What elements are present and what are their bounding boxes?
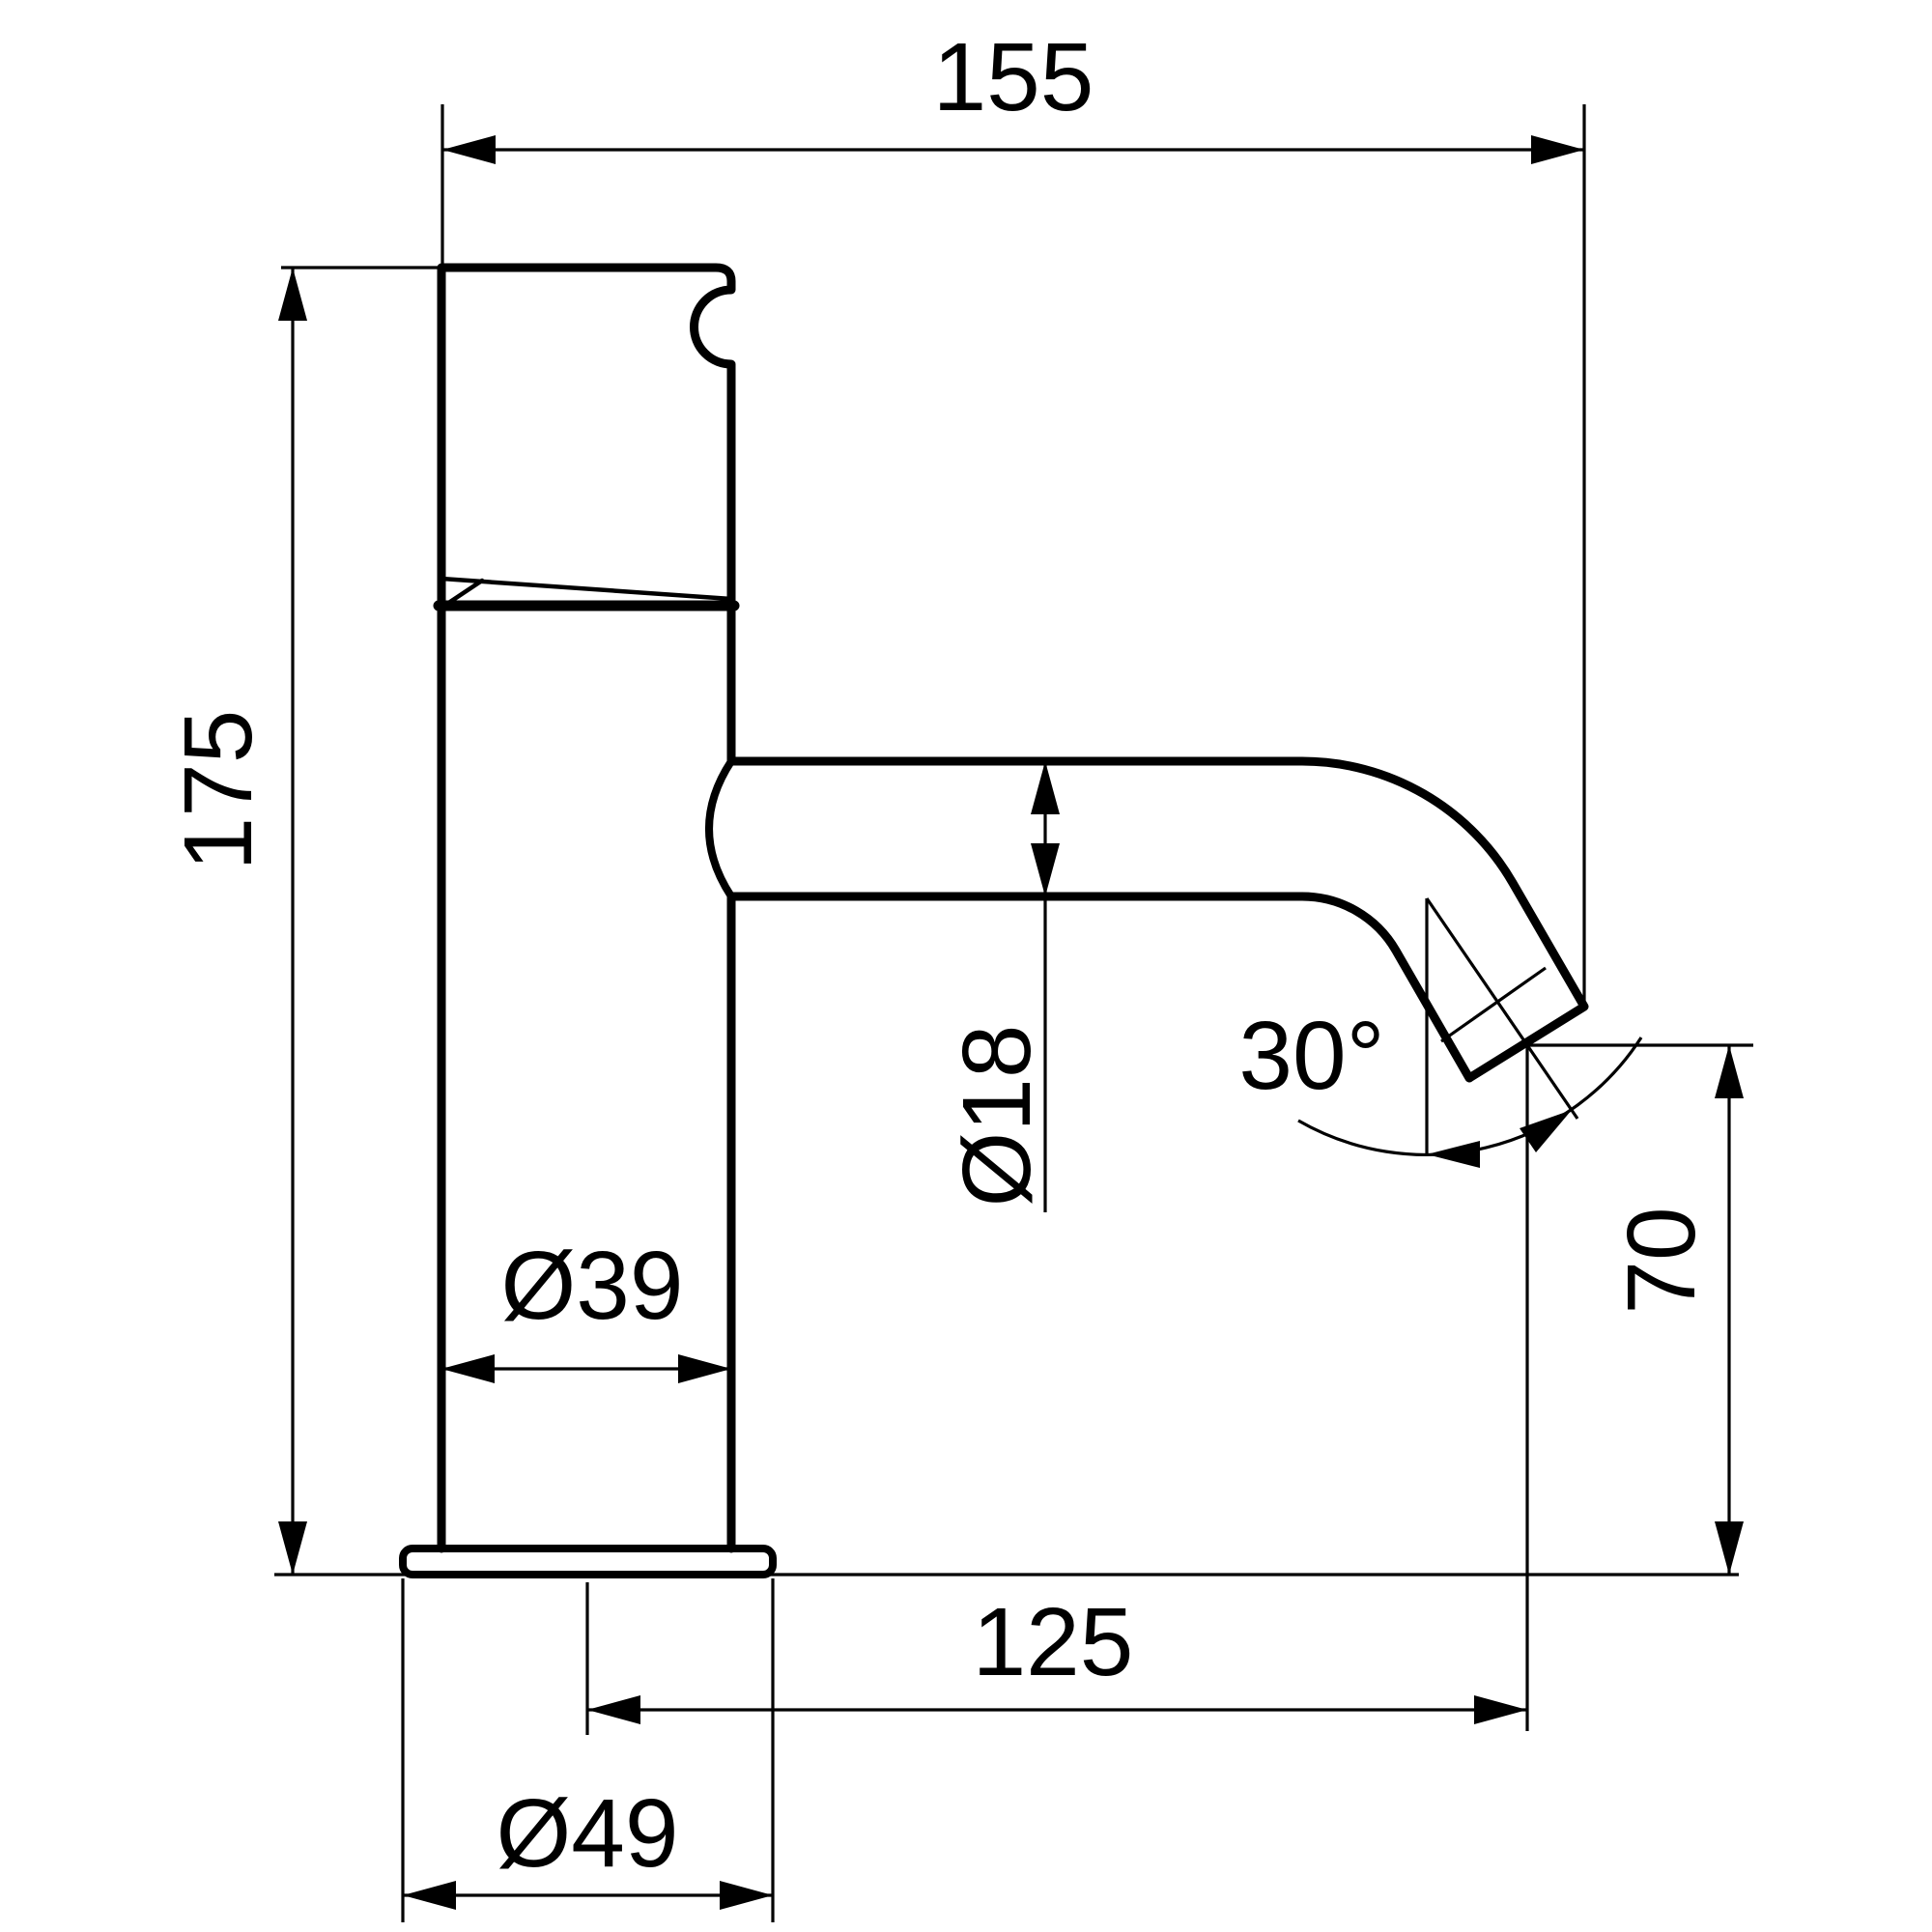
arrowhead-18-bottom [1031, 843, 1060, 896]
arrowhead-125-left [587, 1695, 640, 1724]
arrowhead-155-left [442, 135, 496, 164]
arrowhead-175-bottom [278, 1521, 307, 1575]
handle-bottom-edge [441, 579, 731, 599]
dim-label-diameter-39: Ø39 [500, 1232, 683, 1340]
arrowhead-70-bottom [1715, 1521, 1744, 1575]
dim-label-125: 125 [973, 1588, 1134, 1696]
faucet-dimension-drawing: 155 175 Ø18 30° Ø39 70 125 Ø49 [0, 0, 1932, 1932]
arrowhead-18-top [1031, 761, 1060, 814]
angle-axis-diagonal [1427, 898, 1577, 1119]
arrowhead-125-right [1474, 1695, 1527, 1724]
arrowhead-70-top [1715, 1045, 1744, 1098]
base-plate-outline [403, 1548, 773, 1575]
arrowhead-175-top [278, 268, 307, 321]
dim-label-diameter-49: Ø49 [496, 1779, 678, 1888]
handle-outline [441, 268, 731, 609]
dim-label-175: 175 [164, 710, 272, 871]
arrowhead-49-right [720, 1881, 773, 1910]
arrowhead-155-right [1531, 135, 1584, 164]
technical-drawing-sheet: 155 175 Ø18 30° Ø39 70 125 Ø49 [0, 0, 1932, 1932]
arrowhead-39-left [441, 1354, 495, 1383]
dim-label-diameter-18: Ø18 [943, 1024, 1051, 1207]
spout-opening-back-edge [1441, 968, 1546, 1041]
dim-label-70: 70 [1607, 1207, 1716, 1314]
dim-label-angle-30: 30° [1238, 1002, 1384, 1110]
spout-root-cap-arc [709, 761, 731, 896]
arrowhead-49-left [403, 1881, 456, 1910]
dim-label-155: 155 [933, 23, 1094, 131]
arrowhead-angle-vertical [1427, 1141, 1480, 1168]
arrowhead-39-right [678, 1354, 731, 1383]
